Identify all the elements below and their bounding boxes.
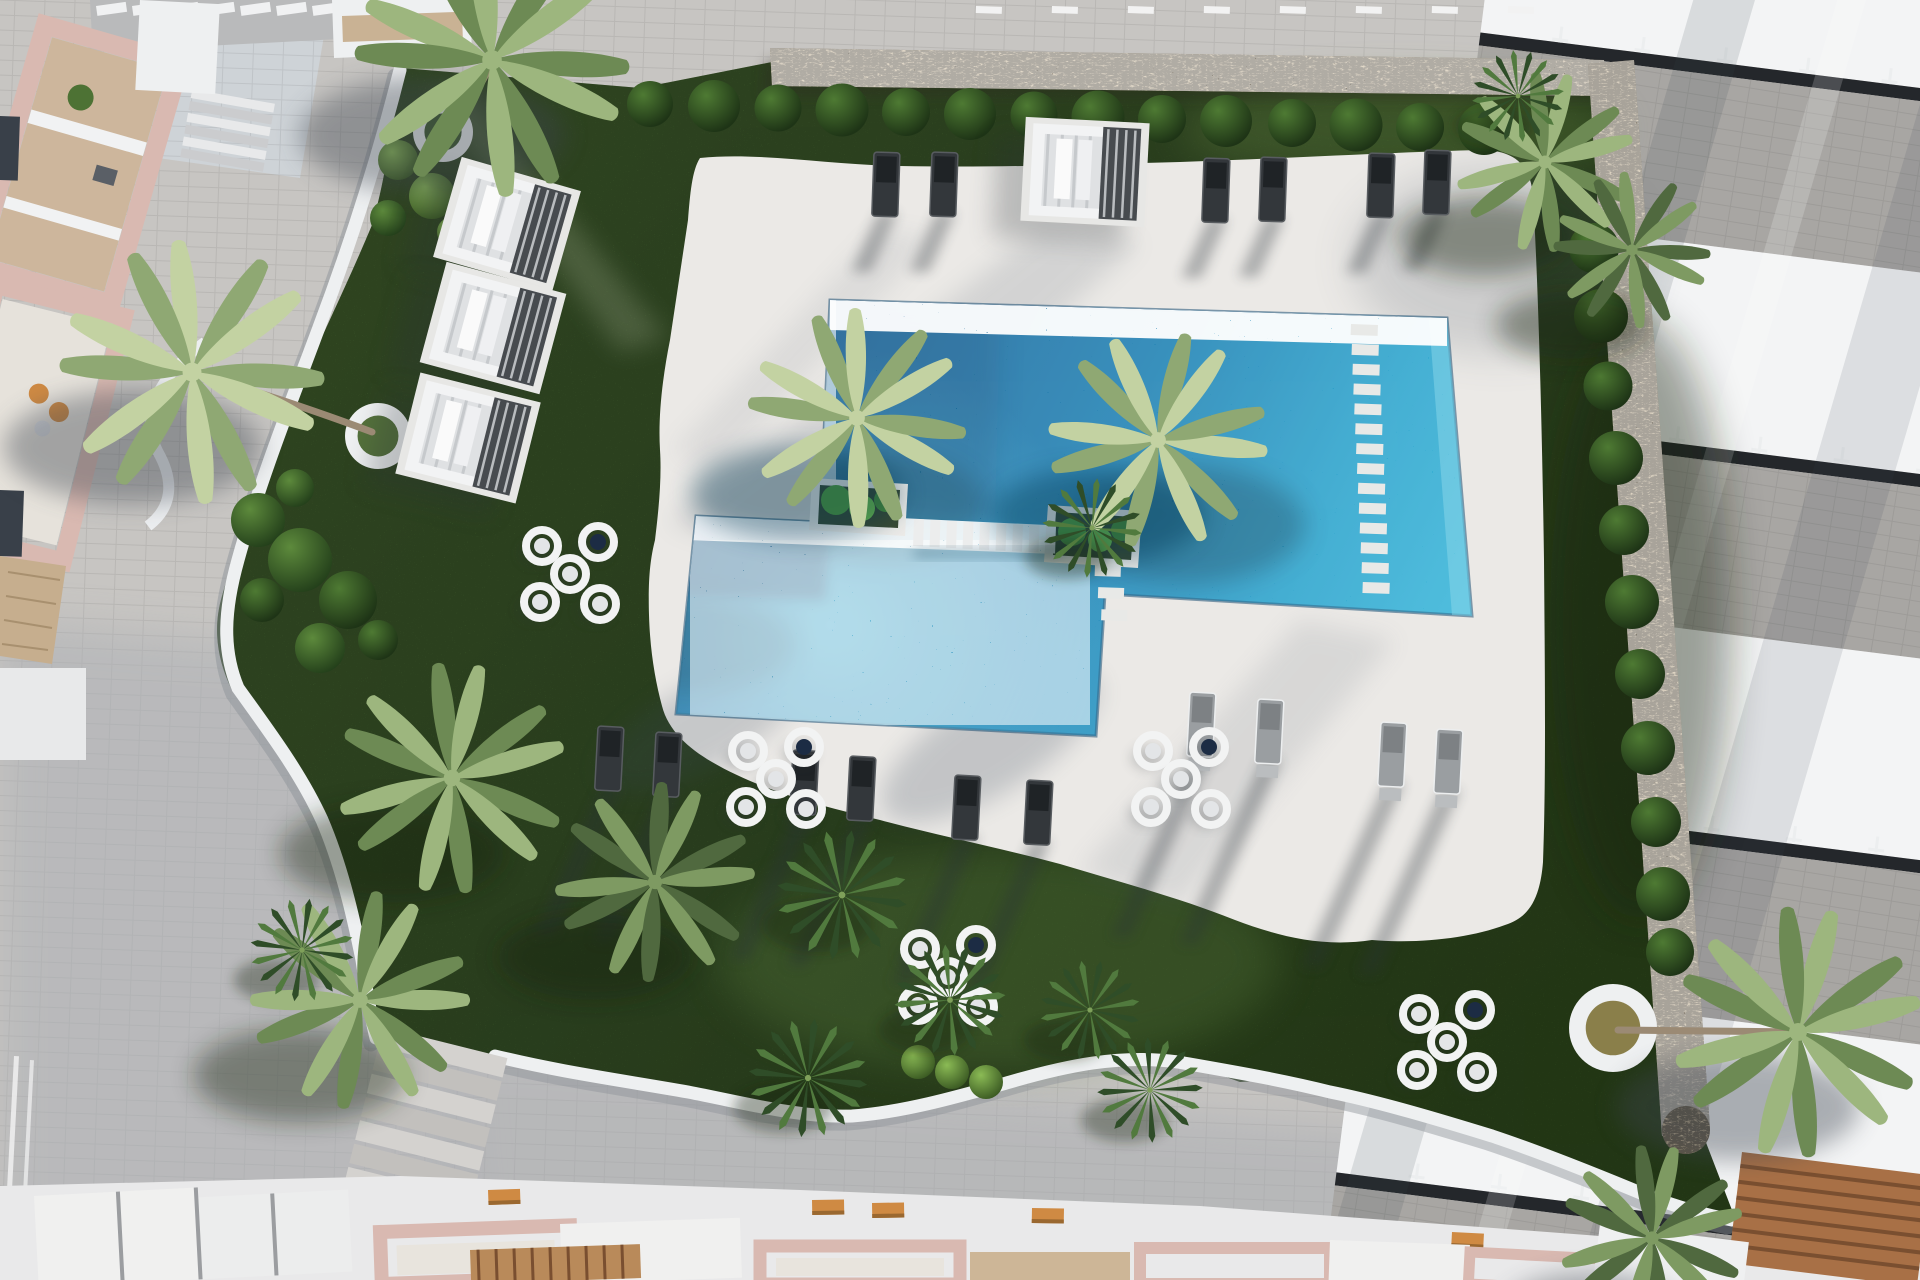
pool-step xyxy=(1354,403,1381,415)
chair-cushion xyxy=(592,596,608,612)
lounger-footrest xyxy=(1256,765,1279,778)
lounger-backrest xyxy=(956,779,977,806)
chair-cushion xyxy=(968,937,984,953)
hedge-ball xyxy=(1636,867,1690,921)
garden-bush xyxy=(240,578,284,622)
chair-cushion xyxy=(590,534,606,550)
pink-pergola-bottom-2 xyxy=(760,1246,960,1280)
pool-step xyxy=(1359,503,1386,515)
white-building-block xyxy=(135,0,220,94)
chair-cushion xyxy=(796,739,812,755)
pool-step xyxy=(1351,324,1378,336)
lounger-backrest xyxy=(1263,161,1284,188)
lounger-backrest xyxy=(1028,784,1049,811)
wood-bench xyxy=(1032,1208,1064,1224)
bridge-slat xyxy=(930,520,941,547)
white-roof-slab xyxy=(1328,1240,1469,1280)
pool-step xyxy=(1362,582,1389,594)
lounger-backrest xyxy=(1427,154,1448,181)
chair-cushion xyxy=(740,743,756,759)
bench-edge xyxy=(1032,1219,1064,1224)
scene-svg xyxy=(0,0,1920,1280)
hedge-ball xyxy=(1396,103,1444,151)
lounger-backrest xyxy=(1382,726,1403,753)
garden-bush xyxy=(319,571,377,629)
cabana-towel xyxy=(1054,138,1073,199)
bridge-slat xyxy=(979,523,990,550)
chair-cushion xyxy=(768,771,784,787)
lounger-backrest xyxy=(876,156,897,183)
hedge-ball xyxy=(688,80,740,132)
pool-step xyxy=(1101,609,1127,621)
pool-step xyxy=(1357,463,1384,475)
lounger-footrest xyxy=(1379,788,1402,801)
sun-lounger xyxy=(1423,150,1451,215)
wood-bench xyxy=(872,1202,904,1218)
sun-lounger xyxy=(952,775,981,840)
white-roof-bottom-left xyxy=(34,1180,352,1280)
chair-cushion xyxy=(798,801,814,817)
bench-edge xyxy=(812,1210,844,1215)
chair-cushion xyxy=(738,799,754,815)
aerial-render-canvas xyxy=(0,0,1920,1280)
chair-cushion xyxy=(1143,799,1159,815)
pool-step xyxy=(1352,364,1379,376)
hedge-ball xyxy=(1615,649,1665,699)
parking-line xyxy=(1508,6,1534,14)
pool-step xyxy=(1360,522,1387,534)
hedge-ball xyxy=(1621,721,1675,775)
white-building-block xyxy=(0,668,86,760)
parking-line xyxy=(1204,6,1230,14)
chair-cushion xyxy=(1411,1006,1427,1022)
garden-bush xyxy=(370,200,406,236)
sun-lounger xyxy=(1202,158,1230,223)
chair-cushion xyxy=(1203,801,1219,817)
hedge-ball xyxy=(627,81,673,127)
pool-step xyxy=(1353,384,1380,396)
bench-edge xyxy=(872,1213,904,1218)
lounger-backrest xyxy=(599,730,620,757)
chair-cushion xyxy=(1439,1034,1455,1050)
wood-pergola-bottom-right xyxy=(1728,1152,1920,1280)
pool-step xyxy=(1358,483,1385,495)
parking-line xyxy=(1280,6,1306,14)
chair-cushion xyxy=(532,594,548,610)
parking-line xyxy=(1356,6,1382,14)
pool-step xyxy=(1356,443,1383,455)
garden-bush xyxy=(935,1055,969,1089)
hedge-ball xyxy=(1646,928,1694,976)
lounger-backrest xyxy=(1191,696,1212,723)
chair-cushion xyxy=(1201,739,1217,755)
garden-bush xyxy=(969,1065,1003,1099)
sun-lounger xyxy=(1259,157,1287,222)
hedge-ball xyxy=(1589,431,1643,485)
lounger-backrest xyxy=(1371,157,1392,184)
chair-cushion xyxy=(562,566,578,582)
hedge-ball xyxy=(755,85,802,132)
chair-cushion xyxy=(1145,743,1161,759)
window-slot xyxy=(0,490,24,557)
lounger-backrest xyxy=(934,156,955,183)
palm-shadow xyxy=(1496,291,1648,358)
garden-bush xyxy=(295,623,345,673)
chair-cushion xyxy=(534,538,550,554)
sun-lounger xyxy=(930,152,958,217)
chair-cushion xyxy=(1173,771,1189,787)
pool-step xyxy=(1355,423,1382,435)
pool-step xyxy=(1362,562,1389,574)
hedge-ball xyxy=(944,88,996,140)
parking-line xyxy=(1128,6,1154,14)
hedge-ball xyxy=(816,84,869,137)
pool-step xyxy=(1098,587,1124,599)
hedge-ball xyxy=(882,88,930,136)
hedge-ball xyxy=(1599,505,1649,555)
lounger-backrest xyxy=(851,760,872,787)
lounger-backrest xyxy=(1206,162,1227,189)
garden-bush xyxy=(358,620,398,660)
sun-lounger xyxy=(1024,780,1053,845)
chair-cushion xyxy=(1469,1064,1485,1080)
wood-bench xyxy=(488,1189,521,1205)
sun-lounger xyxy=(847,756,876,821)
bridge-slat xyxy=(963,522,974,549)
wood-bench xyxy=(812,1199,844,1215)
pool-step xyxy=(1361,542,1388,554)
hedge-ball xyxy=(1268,99,1316,147)
window-slot xyxy=(0,116,20,181)
sun-lounger xyxy=(1367,153,1395,218)
sun-lounger xyxy=(872,152,900,217)
lounger-backrest xyxy=(657,736,678,763)
bridge-slat xyxy=(913,519,924,546)
chair-cushion xyxy=(1467,1002,1483,1018)
bridge-slat xyxy=(946,521,957,548)
palm-shadow xyxy=(498,914,692,1000)
sun-lounger xyxy=(595,726,624,791)
parking-line xyxy=(1052,6,1078,14)
hedge-ball xyxy=(1330,99,1383,152)
garden-bush xyxy=(276,469,314,507)
parking-line xyxy=(976,6,1002,14)
hedge-ball xyxy=(1584,362,1633,411)
wood-slat-pergola xyxy=(470,1244,641,1280)
lounger-footrest xyxy=(1435,795,1458,808)
hedge-ball xyxy=(1631,797,1681,847)
wood-terrace xyxy=(970,1252,1130,1280)
chair-cushion xyxy=(1409,1062,1425,1078)
hedge-ball xyxy=(1200,95,1252,147)
garden-bush xyxy=(268,528,332,592)
parking-line xyxy=(1432,6,1458,14)
lounger-backrest xyxy=(1259,703,1280,730)
pool-step xyxy=(1352,344,1379,356)
hedge-ball xyxy=(1605,575,1659,629)
lounger-backrest xyxy=(1438,733,1459,760)
